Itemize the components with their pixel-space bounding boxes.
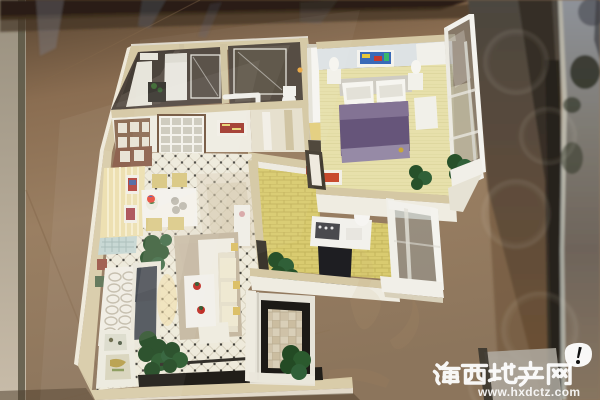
svg-text:www.hxdctz.com: www.hxdctz.com [477, 385, 581, 399]
